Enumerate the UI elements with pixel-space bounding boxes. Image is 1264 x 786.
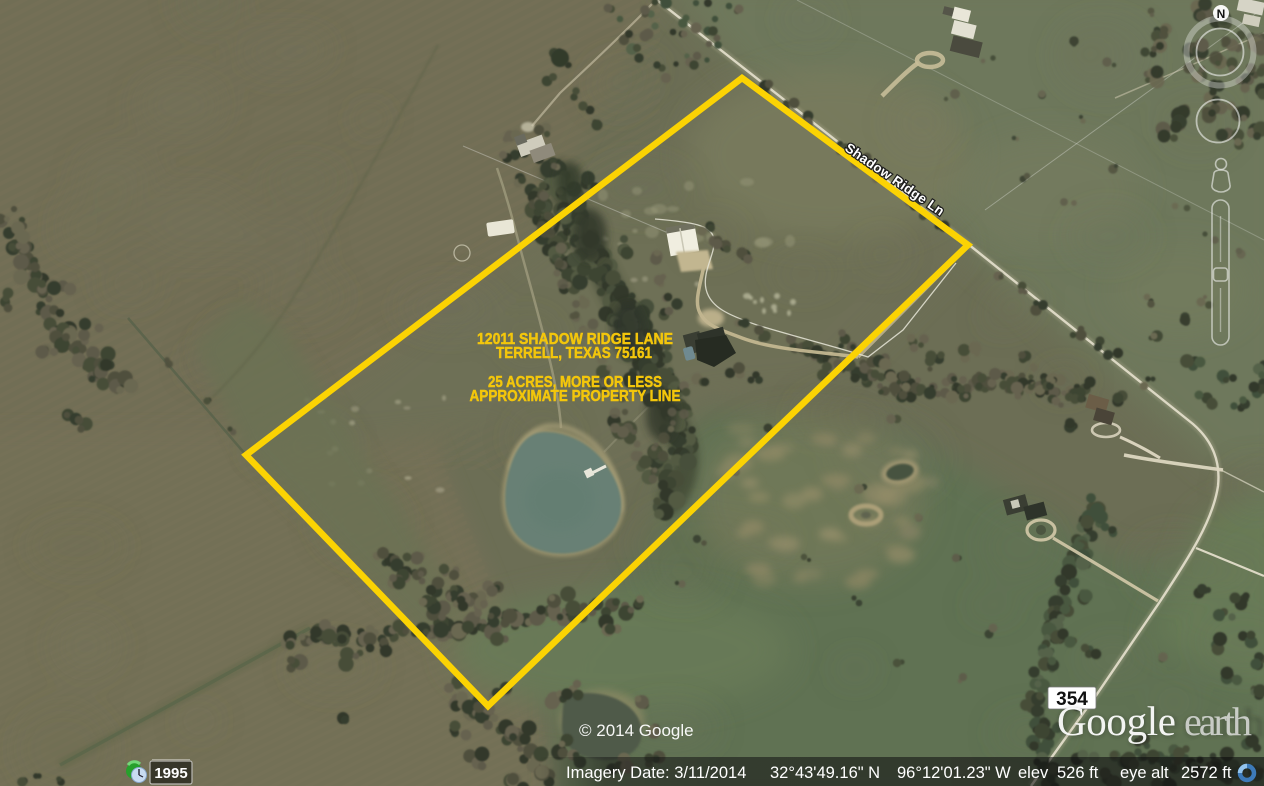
svg-text:526 ft: 526 ft xyxy=(1057,764,1099,782)
svg-text:© 2014 Google: © 2014 Google xyxy=(579,721,694,740)
svg-text:elev: elev xyxy=(1018,764,1049,782)
svg-text:TERRELL, TEXAS 75161: TERRELL, TEXAS 75161 xyxy=(496,345,652,362)
svg-text:Imagery Date: 3/11/2014: Imagery Date: 3/11/2014 xyxy=(566,764,746,782)
svg-text:APPROXIMATE PROPERTY LINE: APPROXIMATE PROPERTY LINE xyxy=(470,388,681,405)
svg-text:N: N xyxy=(1217,7,1226,21)
svg-text:32°43'49.16" N: 32°43'49.16" N xyxy=(770,764,880,782)
svg-text:2572 ft: 2572 ft xyxy=(1181,764,1232,782)
svg-text:Google: Google xyxy=(1057,698,1176,744)
svg-text:96°12'01.23" W: 96°12'01.23" W xyxy=(897,764,1011,782)
svg-text:1995: 1995 xyxy=(154,765,187,782)
svg-text:earth: earth xyxy=(1184,699,1252,744)
svg-text:eye alt: eye alt xyxy=(1120,764,1169,782)
